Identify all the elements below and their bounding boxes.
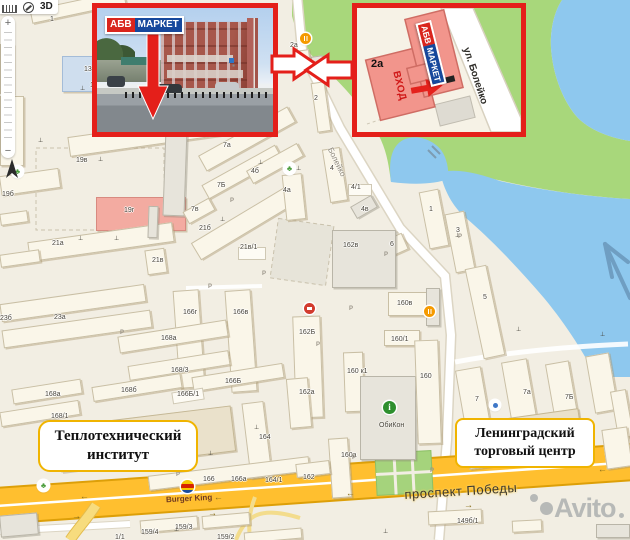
mode-3d-button[interactable]: 3D [40,1,53,13]
building-label: 166а [231,476,247,484]
building-label: 164/1 [265,477,283,485]
building-label: 162в [343,242,358,250]
lane-arrow-icon: ← [598,465,608,475]
building-label: 1 [429,206,433,214]
photo-road-sign [229,58,234,63]
building-label: 21б [199,225,211,233]
compass-tool-icon[interactable] [23,2,34,13]
parking-icon: P [176,472,180,478]
building-label: 162 [303,474,315,482]
building-label: 5 [483,294,487,302]
arrow-left-icon [306,55,352,85]
photo-car [107,76,125,87]
parcel [270,218,334,285]
parking-icon: P [352,455,356,461]
lane-arrow-icon: → [464,501,474,511]
building-label: 6 [390,241,394,249]
logo-part-market: МАРКЕТ [135,18,182,32]
hotel-poi-icon[interactable] [490,400,500,410]
building-label: 160 к1 [347,368,368,376]
monument-icon: ⊥ [254,425,259,431]
parking-icon: P [262,271,266,277]
building-label: 21в/1 [240,244,257,252]
lane-arrow-icon: → [72,512,82,522]
lane-arrow-icon: → [208,509,218,519]
monument-icon: ⊥ [98,157,103,163]
building-label: 166г [183,309,197,317]
building-label: 1 [50,16,54,24]
park-poi-icon[interactable]: ♣ [38,480,49,491]
map-toolbar: 3D [0,0,58,14]
info-icon[interactable]: i [383,401,396,414]
lane-arrow-icon: ← [214,493,224,503]
zoom-control: + − [1,16,15,158]
building-label: 166Б [225,378,241,386]
inset-photo: АБВ МАРКЕТ [92,3,278,137]
building-label: 166 [203,476,215,484]
building-label: 19б [2,191,14,199]
building-label: 4а [283,187,291,195]
building-label: 162Б [299,329,315,337]
monument-icon: ⊥ [383,529,388,535]
monument-icon: ⊥ [220,217,225,223]
obikon-label: ОбиКон [379,422,404,429]
building-label: 7Б [217,182,226,190]
building-label: 160в [397,300,412,308]
building-label: 7Б [565,394,574,402]
landmark-line: Ленинградский [463,425,587,443]
building-label: 13 [84,66,92,74]
abv-market-logo: АБВ МАРКЕТ [105,16,184,34]
building [286,377,312,429]
logo-part-abv: АБВ [418,22,435,47]
inset-building-label: 2а [371,58,383,70]
building [414,340,442,445]
building [162,128,187,217]
restaurant-poi-icon[interactable] [424,306,435,317]
north-arrow-icon[interactable] [3,158,21,180]
photo-banner [167,70,243,78]
building-label: 4б [251,168,259,176]
building-label: 166Б/1 [177,391,199,399]
ruler-icon[interactable] [2,5,17,13]
parking-icon: P [430,468,434,474]
building-label: 21в [152,257,164,265]
monument-icon: ⊥ [516,327,521,333]
building-label: 23б [0,315,12,323]
monument-icon: ⊥ [174,527,179,533]
building [332,230,396,288]
building-label: 21а [52,240,64,248]
building-label: 162а [299,389,315,397]
monument-icon: ⊥ [296,166,301,172]
building-label: 166в [233,309,248,317]
building-label: 23а [54,314,66,322]
photo-car [215,82,239,90]
parking-icon: P [230,198,234,204]
zoom-slider[interactable] [4,32,12,142]
monument-icon: ⊥ [258,160,263,166]
building-label: 168б [121,387,137,395]
monument-icon: ⊥ [80,86,85,92]
building-label: 4/1 [351,184,361,192]
building-label: 7а [223,142,231,150]
lane-arrow-icon: ← [80,492,90,502]
avito-watermark-text: Avito [554,496,616,520]
building-label: 149б/1 [457,518,479,526]
building-label: 164 [259,434,271,442]
landmark-line: Теплотехнический [46,427,190,446]
building-label: 1/1 [115,534,125,540]
building-label: 159/2 [217,534,235,540]
avito-dot-icon [619,513,624,518]
building-label: 19г [124,207,134,215]
parking-icon: P [316,342,320,348]
building [512,519,543,533]
avito-watermark: Avito [518,496,624,520]
connector-arrows [260,40,360,100]
building-label: 7 [475,396,479,404]
building-label: 160/1 [391,336,409,344]
park-poi-icon[interactable]: ♣ [284,163,295,174]
monument-icon: ⊥ [208,451,213,457]
parking-icon: P [349,306,353,312]
building [147,206,158,238]
building [0,512,39,537]
building-label: 168а [161,335,177,343]
zoom-in-button[interactable]: + [5,16,11,30]
building-label: 4в [361,206,369,214]
landmark-line: торговый центр [463,443,587,461]
inset-map-zoom: 2а АБВ МАРКЕТ ВХОД ул. Болейко [352,3,526,137]
red-down-arrow-icon [137,34,169,120]
zoom-out-button[interactable]: − [5,144,11,158]
building-label: 160 [420,373,432,381]
arrow-right-icon [272,49,316,79]
building-label: 4 [330,165,334,173]
shop-poi-icon[interactable] [304,303,315,314]
monument-icon: ⊥ [38,138,43,144]
building [596,524,630,538]
building-label: 168а [45,391,61,399]
building-label: 19в [76,157,88,165]
monument-icon: ⊥ [114,236,119,242]
parking-icon: P [458,234,462,240]
building [360,376,416,460]
lane-arrow-icon: ← [346,489,356,499]
monument-icon: ⊥ [78,236,83,242]
building-label: 159/4 [141,529,159,537]
parking-icon: P [120,330,124,336]
photo-banner [167,55,233,62]
avito-logo-icon [518,498,554,520]
landmark-line: институт [46,446,190,465]
burger-king-icon[interactable] [181,480,194,493]
building-label: 7а [523,389,531,397]
landmark-box-mall: Ленинградский торговый центр [455,418,595,468]
logo-part-abv: АБВ [107,18,135,32]
map-screenshot: 1131117Б19в19б19г21а21в21б21в/123б23а7а7… [0,0,630,540]
parking-icon: P [208,284,212,290]
building-label: 7в [191,206,199,214]
parking-icon: P [384,252,388,258]
landmark-box-institute: Теплотехнический институт [38,420,198,472]
building-label: 168/3 [171,367,189,375]
monument-icon: ⊥ [600,332,605,338]
